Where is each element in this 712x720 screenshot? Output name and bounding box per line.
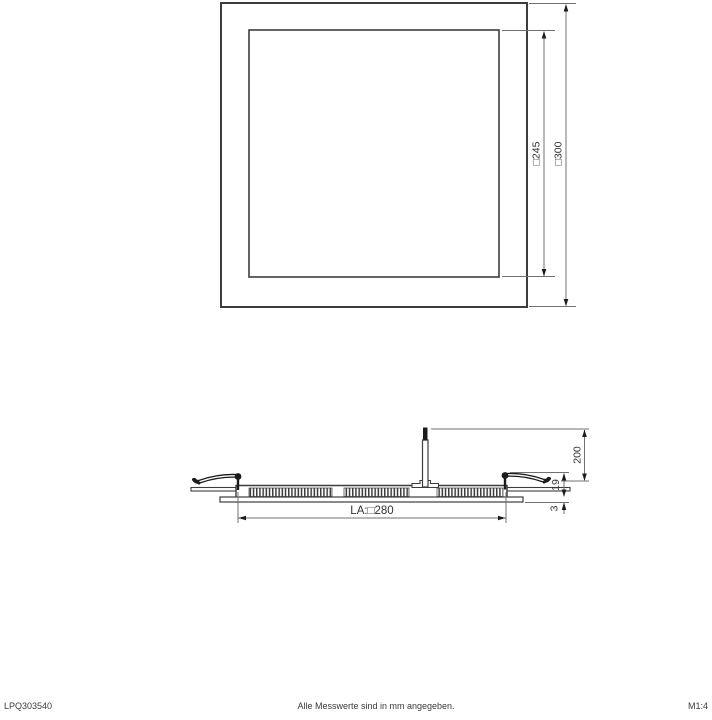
top-view: □245 □300	[221, 3, 576, 307]
drawing-scale: M1:4	[688, 701, 708, 711]
dim-label-protrusion: 3	[548, 505, 560, 511]
measurement-note: Alle Messwerte sind in mm angegeben.	[297, 701, 454, 711]
dim-label-recess: 19	[550, 479, 562, 491]
technical-drawing-canvas: □245 □300	[0, 0, 712, 720]
arrow-up-icon	[562, 503, 567, 511]
clip-pivot-icon	[235, 473, 242, 480]
front-frame-bezel	[220, 497, 523, 502]
arrow-down-icon	[564, 299, 569, 307]
arrow-down-icon	[542, 269, 547, 277]
product-code: LPQ303540	[4, 701, 52, 711]
spring-clip-right	[502, 472, 550, 489]
heatsink-hatch	[249, 488, 503, 497]
footer: LPQ303540 Alle Messwerte sind in mm ange…	[4, 701, 708, 711]
arrow-up-icon	[542, 31, 547, 39]
panel-light-surface	[249, 30, 499, 277]
arrow-down-icon	[582, 474, 587, 482]
stud-thread-tip	[423, 428, 428, 441]
arrow-up-icon	[582, 430, 587, 438]
drawing-svg: □245 □300	[0, 0, 712, 720]
dim-label-outer: □300	[552, 141, 564, 165]
dim-label-suspension: 200	[571, 446, 583, 464]
arrow-right-icon	[498, 516, 506, 521]
ceiling-edge-left	[191, 488, 236, 492]
arrow-left-icon	[239, 516, 247, 521]
arrow-down-icon	[562, 490, 567, 498]
dimension-inner-245	[502, 31, 555, 277]
dim-label-inner: □245	[530, 141, 542, 165]
arrow-up-icon	[564, 4, 569, 12]
dim-label-cutout: LA:□280	[350, 505, 393, 517]
arrow-up-icon	[562, 473, 567, 481]
clip-pivot-icon	[502, 472, 509, 479]
side-view: 200 19 3 LA:□280	[191, 428, 589, 524]
panel-outer-frame	[221, 3, 527, 307]
suspension-stud	[423, 440, 429, 487]
